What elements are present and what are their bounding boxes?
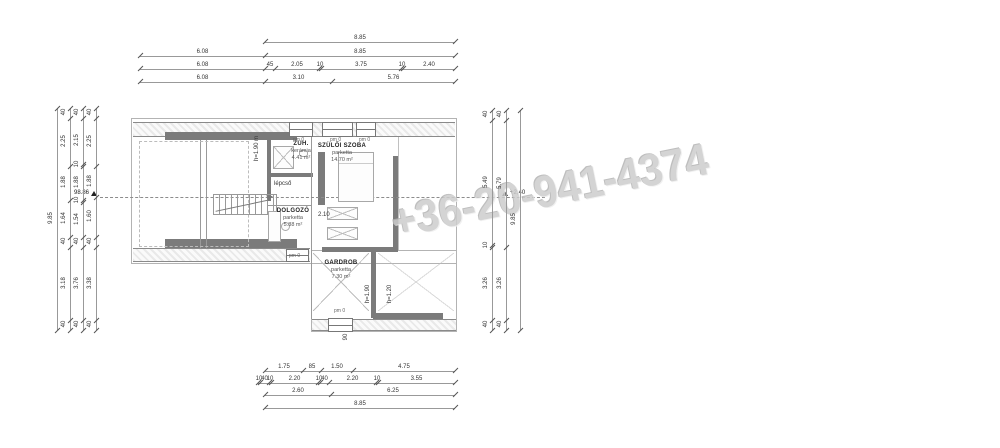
dimension-label: 40 xyxy=(87,100,93,124)
dimension-line xyxy=(506,110,507,330)
annotation-label: 2.10 xyxy=(318,212,330,218)
dimension-label: 40 xyxy=(483,312,489,336)
dimension-label: 40 xyxy=(74,229,80,253)
stair-arrow-icon xyxy=(266,193,273,200)
dimension-label: 3.38 xyxy=(87,271,93,295)
dimension-label: 40 xyxy=(87,312,93,336)
dimension-label: 3.26 xyxy=(497,271,503,295)
dimension-label: 10 xyxy=(483,233,489,257)
dimension-tick xyxy=(518,328,524,334)
dimension-tick xyxy=(94,328,100,334)
dimension-label: 9.85 xyxy=(48,206,54,230)
dimension-label: 2.15 xyxy=(74,128,80,152)
floorplan-canvas: ZUH. kerámia 4.41 m² SZÜLŐI SZOBA parket… xyxy=(0,0,1000,448)
wall-bedroom-bottom xyxy=(322,247,398,252)
dimension-tick xyxy=(453,368,459,374)
dimension-label: 1.64 xyxy=(61,206,67,230)
room-material: parketta xyxy=(324,267,357,273)
dimension-label: 5.49 xyxy=(483,170,489,194)
dimension-label: 4.75 xyxy=(392,364,416,370)
wall-wardrobe-left xyxy=(311,250,312,319)
room-area: 14.70 m² xyxy=(318,157,366,163)
wall-study-right xyxy=(311,177,312,250)
parapet-height-label: pm 0 xyxy=(289,254,300,259)
dimension-label: 2.60 xyxy=(286,388,310,394)
dimension-line xyxy=(520,110,521,330)
dimension-line xyxy=(70,108,71,330)
parapet-height-label: pm 0 xyxy=(334,309,345,314)
dimension-tick xyxy=(453,392,459,398)
dimension-label: 2.25 xyxy=(87,129,93,153)
dimension-tick xyxy=(490,328,496,334)
dimension-line xyxy=(492,110,493,330)
dimension-label: 40 xyxy=(497,102,503,126)
room-material: parketta xyxy=(318,150,366,156)
annotation-label-rotated: h=1.90 xyxy=(365,282,371,306)
room-name: SZÜLŐI SZOBA xyxy=(318,143,366,149)
dimension-label: 2.40 xyxy=(417,62,441,68)
window-top-1 xyxy=(289,122,313,137)
dimension-tick xyxy=(453,79,459,85)
annotation-label-rotated: h=1.20 xyxy=(387,282,393,306)
dimension-line xyxy=(140,56,455,57)
dimension-label: 3.10 xyxy=(287,75,311,81)
dimension-label: 10 xyxy=(365,376,389,382)
room-area: 7.30 m² xyxy=(324,274,357,280)
knee-wall-top xyxy=(165,132,297,140)
dimension-label: 10 xyxy=(390,62,414,68)
dimension-label: 3.76 xyxy=(74,271,80,295)
dimension-tick xyxy=(68,328,74,334)
dimension-label: 6.08 xyxy=(191,49,215,55)
dimension-label: 5.79 xyxy=(497,171,503,195)
dimension-label: 2.20 xyxy=(341,376,365,382)
dimension-label: 40 xyxy=(313,376,337,382)
annotation-label-rotated: h=1.90 m xyxy=(254,137,260,161)
dimension-label: 3.26 xyxy=(483,271,489,295)
wall-shower-left xyxy=(267,137,271,201)
dimension-label: 40 xyxy=(74,100,80,124)
annotation-label-rotated: 90 xyxy=(343,325,349,349)
dimension-label: 8.85 xyxy=(348,35,372,41)
dimension-label: 8.85 xyxy=(348,49,372,55)
dimension-label: 3.55 xyxy=(405,376,429,382)
dimension-label: 9.85 xyxy=(511,207,517,231)
dimension-tick xyxy=(55,328,61,334)
chest-2 xyxy=(327,227,358,240)
room-area: 5.88 m² xyxy=(277,222,309,228)
dimension-label: 5.76 xyxy=(382,75,406,81)
dimension-label: 45 xyxy=(258,62,282,68)
annotation-label: lépcső xyxy=(274,181,291,187)
dimension-tick xyxy=(453,53,459,59)
dimension-label: 1.88 xyxy=(87,169,93,193)
dimension-line xyxy=(265,42,455,43)
dimension-tick xyxy=(81,328,87,334)
parapet-height-label: pm 0 xyxy=(359,138,370,143)
room-label-shower: ZUH. kerámia 4.41 m² xyxy=(291,141,311,161)
dimension-line xyxy=(265,395,455,396)
dimension-label: 2.25 xyxy=(61,129,67,153)
dimension-line xyxy=(265,408,455,409)
dimension-label: 1.60 xyxy=(87,204,93,228)
dimension-line xyxy=(265,371,455,372)
dimension-line xyxy=(140,69,455,70)
room-label-study: DOLGOZÓ parketta 5.88 m² xyxy=(277,208,309,228)
dimension-label: 1.50 xyxy=(325,364,349,370)
dimension-label: 40 xyxy=(74,312,80,336)
room-area: 4.41 m² xyxy=(291,155,311,161)
dimension-label: 40 xyxy=(61,229,67,253)
window-top-2 xyxy=(322,122,353,137)
window-top-3 xyxy=(356,122,376,137)
dimension-label: 1.75 xyxy=(272,364,296,370)
wall-shower-bottom xyxy=(267,173,313,177)
wall-lower-bottom xyxy=(373,313,443,319)
room-label-bedroom: SZÜLŐI SZOBA parketta 14.70 m² xyxy=(318,143,366,163)
dimension-line xyxy=(96,108,97,330)
dimension-tick xyxy=(453,380,459,386)
room-name: DOLGOZÓ xyxy=(277,208,309,214)
dimension-label: 40 xyxy=(61,100,67,124)
dimension-label: 40 xyxy=(87,229,93,253)
wall-bottom-left xyxy=(133,248,310,262)
dimension-line xyxy=(258,383,455,384)
parapet-height-label: pm 0 xyxy=(293,138,304,143)
dimension-label: 2.20 xyxy=(283,376,307,382)
dimension-line xyxy=(140,82,455,83)
dimension-tick xyxy=(453,66,459,72)
parapet-height-label: pm 0 xyxy=(330,138,341,143)
dimension-label: 6.08 xyxy=(191,75,215,81)
dimension-label: 40 xyxy=(61,312,67,336)
dimension-tick xyxy=(453,405,459,411)
dimension-label: 6.25 xyxy=(381,388,405,394)
room-material: parketta xyxy=(277,215,309,221)
dimension-label: 10 xyxy=(258,376,282,382)
dimension-label: 8.85 xyxy=(348,401,372,407)
dimension-line xyxy=(83,108,84,330)
dimension-label: 1.54 xyxy=(74,207,80,231)
dimension-label: 6.08 xyxy=(191,62,215,68)
wall-wardrobe-right xyxy=(371,252,376,318)
room-label-wardrobe: GARDROB parketta 7.30 m² xyxy=(324,260,357,280)
room-name: GARDROB xyxy=(324,260,357,266)
dimension-label: 1.88 xyxy=(61,170,67,194)
window-wardrobe xyxy=(328,318,353,332)
dimension-tick xyxy=(453,39,459,45)
dimension-label: 40 xyxy=(483,102,489,126)
dimension-line xyxy=(57,108,58,330)
chest-1 xyxy=(327,207,358,220)
dimension-label: 3.75 xyxy=(349,62,373,68)
dimension-tick xyxy=(504,328,510,334)
wall-shower-right xyxy=(311,137,312,177)
dimension-label: 40 xyxy=(497,312,503,336)
dimension-label: 2.05 xyxy=(285,62,309,68)
dimension-label: 3.18 xyxy=(61,271,67,295)
room-material: kerámia xyxy=(291,148,311,154)
dimension-label: 10 xyxy=(308,62,332,68)
